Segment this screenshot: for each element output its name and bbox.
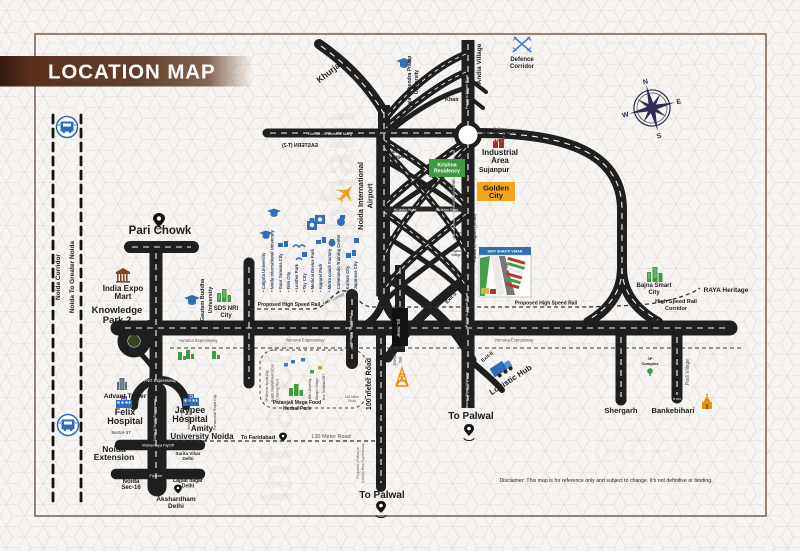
svg-text:SHIV SHAKTI VIHAR: SHIV SHAKTI VIHAR xyxy=(488,250,523,254)
svg-text:Disclaimer: This map is for re: Disclaimer: This map is for reference on… xyxy=(499,478,712,484)
svg-text:To Palwal: To Palwal xyxy=(359,490,405,501)
svg-text:High Speed Rail: High Speed Rail xyxy=(655,299,697,305)
svg-text:• Calgota University: • Calgota University xyxy=(261,252,266,292)
svg-text:Parli Village: Parli Village xyxy=(685,359,691,386)
svg-text:Andia Village: Andia Village xyxy=(476,43,483,84)
svg-text:City: City xyxy=(648,290,660,296)
svg-text:Gautam Buddha: Gautam Buddha xyxy=(200,278,206,321)
svg-text:Residency: Residency xyxy=(434,169,460,175)
svg-text:Bajna Smart: Bajna Smart xyxy=(636,283,671,289)
svg-text:Delhi: Delhi xyxy=(182,484,195,490)
svg-text:Palwal to Aligarh Road: Palwal to Aligarh Road xyxy=(465,75,469,109)
svg-text:LOCATION MAP: LOCATION MAP xyxy=(48,61,216,84)
svg-text:Mart: Mart xyxy=(115,292,132,301)
svg-text:Buddh International Circuit: Buddh International Circuit xyxy=(271,364,275,402)
svg-text:Herbal Park: Herbal Park xyxy=(283,406,311,412)
svg-text:University Noida: University Noida xyxy=(170,432,234,441)
svg-text:Extension: Extension xyxy=(94,452,135,462)
svg-text:Proposed High Speed Rail: Proposed High Speed Rail xyxy=(258,302,321,308)
svg-text:Pari Chowk: Pari Chowk xyxy=(129,225,192,237)
svg-text:Noida Corridor: Noida Corridor xyxy=(55,254,62,300)
svg-text:University: University xyxy=(414,70,420,94)
svg-text:Khair: Khair xyxy=(445,97,460,103)
svg-text:• Korean City: • Korean City xyxy=(345,265,350,292)
svg-text:Palwal to Aligarh Road: Palwal to Aligarh Road xyxy=(465,293,469,327)
svg-text:• Metra coach Factory: • Metra coach Factory xyxy=(327,248,332,292)
svg-text:90 Meter Road: 90 Meter Road xyxy=(394,208,417,212)
svg-text:3P Greens Sports City: 3P Greens Sports City xyxy=(265,370,269,402)
svg-text:Proposed (Palwal to: Proposed (Palwal to xyxy=(356,447,360,478)
svg-text:• Toy City: • Toy City xyxy=(302,272,307,292)
svg-text:Soila Nahar: Soila Nahar xyxy=(451,179,457,205)
svg-text:Noida G.Noida Expressway: Noida G.Noida Expressway xyxy=(153,399,157,441)
svg-text:• Noida International Universi: • Noida International University xyxy=(270,229,275,292)
svg-text:Bus Terminal ISBT: Bus Terminal ISBT xyxy=(322,374,326,400)
svg-text:Noida International: Noida International xyxy=(356,162,365,230)
svg-text:Village: Village xyxy=(451,253,461,257)
svg-text:Khurja) New Expressway: Khurja) New Expressway xyxy=(361,443,365,482)
svg-text:Road: Road xyxy=(348,399,356,403)
svg-text:Yamuna Expressway: Yamuna Expressway xyxy=(178,338,218,343)
svg-text:Corridor: Corridor xyxy=(510,64,535,70)
svg-text:RAYA Heritage: RAYA Heritage xyxy=(704,287,749,294)
svg-text:Sec-16: Sec-16 xyxy=(121,485,141,491)
svg-text:Western Terminal-I: Western Terminal-I xyxy=(348,313,353,346)
svg-text:To Faridabad: To Faridabad xyxy=(241,435,275,441)
svg-text:Amrapali Cacial Estate: Amrapali Cacial Estate xyxy=(187,394,191,430)
svg-text:EASTERN (T-2): EASTERN (T-2) xyxy=(282,143,318,149)
svg-text:130 Meter Road: 130 Meter Road xyxy=(311,434,350,440)
svg-text:Village: Village xyxy=(452,235,462,239)
svg-text:F1 Racing Track: F1 Racing Track xyxy=(276,378,280,402)
svg-text:Raja Mahendra Pratap: Raja Mahendra Pratap xyxy=(407,56,413,109)
svg-text:Domat - Chandaus Marg: Domat - Chandaus Marg xyxy=(308,131,352,136)
svg-text:Jewar Toll: Jewar Toll xyxy=(396,319,401,338)
svg-text:SDS NRI: SDS NRI xyxy=(214,306,239,312)
svg-text:JBM University: JBM University xyxy=(308,378,312,400)
svg-text:Noida To Greater Noida: Noida To Greater Noida xyxy=(69,241,76,313)
svg-text:B 004: B 004 xyxy=(673,397,681,401)
svg-text:Airport: Airport xyxy=(366,183,375,209)
svg-text:• Leather Park: • Leather Park xyxy=(294,263,299,292)
svg-text:Sujanpur: Sujanpur xyxy=(479,167,510,174)
svg-text:Delhi: Delhi xyxy=(168,503,184,510)
svg-text:• Medical Device Park: • Medical Device Park xyxy=(310,248,315,292)
svg-text:Delhi: Delhi xyxy=(182,456,193,461)
svg-text:Advant Tower: Advant Tower xyxy=(104,393,147,400)
svg-text:Nagar: Nagar xyxy=(392,154,405,159)
svg-text:• Japanese City: • Japanese City xyxy=(353,261,358,292)
svg-text:Nimbus: Nimbus xyxy=(180,408,184,420)
svg-text:Bankebihari: Bankebihari xyxy=(652,406,695,415)
svg-text:Corridor: Corridor xyxy=(665,306,688,312)
svg-text:Park 2: Park 2 xyxy=(103,315,132,326)
svg-text:Complex: Complex xyxy=(642,361,660,366)
svg-text:• Commando Training Center: • Commando Training Center xyxy=(336,234,341,292)
svg-text:Toll: Toll xyxy=(398,357,403,364)
svg-text:Akshardham: Akshardham xyxy=(156,496,196,503)
svg-text:Sector-37: Sector-37 xyxy=(111,430,131,435)
svg-text:INFRA: INFRA xyxy=(593,432,697,470)
svg-text:Flyover: Flyover xyxy=(149,473,163,478)
svg-text:• Apparel Park: • Apparel Park xyxy=(318,263,323,292)
svg-text:100 meter Road: 100 meter Road xyxy=(366,358,373,410)
svg-text:• Gaur Yamuna City: • Gaur Yamuna City xyxy=(278,253,283,292)
svg-text:City: City xyxy=(489,191,504,200)
svg-text:• Film City: • Film City xyxy=(286,271,291,292)
svg-text:Hospital: Hospital xyxy=(107,416,143,426)
svg-text:Olympic Village: Olympic Village xyxy=(315,378,319,400)
svg-text:Palwal to Aligarh (SH40): Palwal to Aligarh (SH40) xyxy=(472,213,477,262)
svg-text:City: City xyxy=(220,313,232,319)
svg-text:To Rajna: To Rajna xyxy=(493,127,507,131)
svg-text:Area: Area xyxy=(491,156,509,165)
svg-text:Yamuna Expressway: Yamuna Expressway xyxy=(494,338,534,343)
svg-text:Defence: Defence xyxy=(510,57,534,63)
svg-text:Jewar: Jewar xyxy=(392,354,397,367)
svg-text:Mahamaya FlyOff: Mahamaya FlyOff xyxy=(142,443,174,448)
svg-text:FNG Expressway: FNG Expressway xyxy=(144,378,177,383)
svg-text:SHUBHAM: SHUBHAM xyxy=(558,335,752,377)
svg-text:Purvanchal Royal City: Purvanchal Royal City xyxy=(213,394,217,430)
svg-text:Palwal to Aligarh Highway: Palwal to Aligarh Highway xyxy=(465,372,469,411)
svg-text:To Palwal: To Palwal xyxy=(448,411,494,422)
svg-text:90 Meter Road: 90 Meter Road xyxy=(436,208,459,212)
svg-text:Proposed High Speed Rail: Proposed High Speed Rail xyxy=(515,301,578,307)
svg-text:Shergarh: Shergarh xyxy=(605,406,638,415)
svg-text:Yamuna Expressway: Yamuna Expressway xyxy=(285,338,325,343)
